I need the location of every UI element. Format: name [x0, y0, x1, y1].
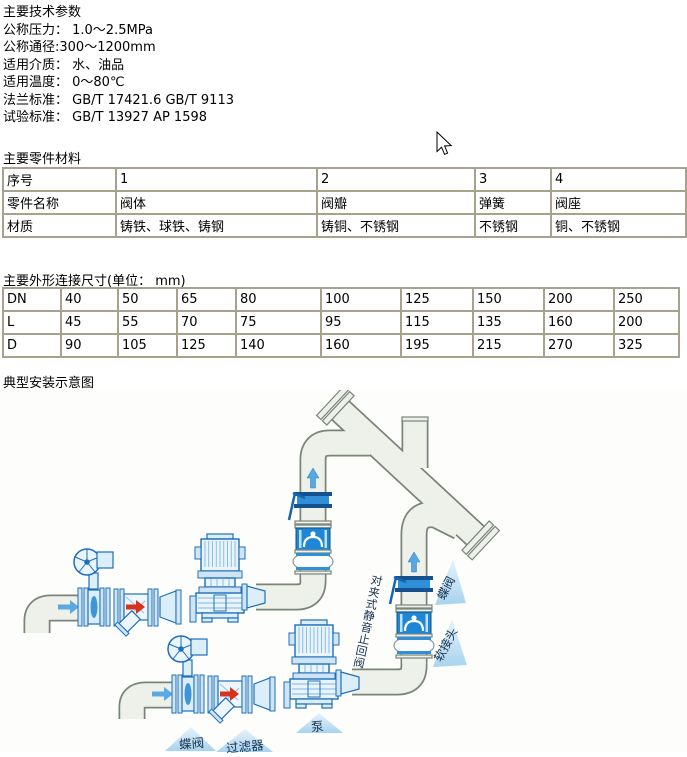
table-cell: 140 [236, 334, 321, 357]
label-butterfly-valve-bottom: 蝶阀 [178, 732, 205, 753]
table-cell: 65 [177, 288, 236, 311]
table-cell: 零件名称 [3, 191, 116, 214]
table-cell: 1 [116, 168, 317, 191]
table-cell: 50 [118, 288, 177, 311]
table-cell: 200 [614, 311, 679, 334]
table-cell: 铸铜、不锈钢 [317, 214, 475, 237]
tech-param-line: 公称通径:300～1200mm [3, 39, 234, 57]
section-title-materials: 主要零件材料 [3, 148, 81, 167]
installation-diagram-drawing [0, 390, 687, 752]
table-cell: 325 [614, 334, 679, 357]
label-strainer: 过滤器 [225, 734, 264, 756]
table-cell: 125 [177, 334, 236, 357]
table-cell: 95 [321, 311, 401, 334]
table-cell: L [3, 311, 61, 334]
table-row: 零件名称阀体阀瓣弹簧阀座 [3, 191, 686, 214]
table-cell: 阀瓣 [317, 191, 475, 214]
table-cell: 200 [544, 288, 614, 311]
table-row: L4555707595115135160200 [3, 311, 679, 334]
section-title-tech-params: 主要技术参数 [3, 4, 234, 22]
materials-table: 序号1234零件名称阀体阀瓣弹簧阀座材质铸铁、球铁、铸钢铸铜、不锈钢不锈钢铜、不… [2, 167, 687, 238]
table-cell: 不锈钢 [475, 214, 551, 237]
table-cell: 135 [473, 311, 544, 334]
table-row: DN40506580100125150200250 [3, 288, 679, 311]
table-cell: 90 [61, 334, 118, 357]
table-cell: 105 [118, 334, 177, 357]
table-cell: 80 [236, 288, 321, 311]
table-cell: 100 [321, 288, 401, 311]
table-cell: 阀座 [551, 191, 686, 214]
table-cell: 270 [544, 334, 614, 357]
branch-stub-cap [402, 417, 428, 421]
table-cell: 160 [544, 311, 614, 334]
table-cell: 250 [614, 288, 679, 311]
table-cell: 115 [401, 311, 473, 334]
table-cell: 160 [321, 334, 401, 357]
tech-param-line: 法兰标准： GB/T 17421.6 GB/T 9113 [3, 92, 234, 110]
label-pump: 泵 [310, 715, 324, 735]
table-cell: 4 [551, 168, 686, 191]
table-cell: 铸铁、球铁、铸钢 [116, 214, 317, 237]
table-cell: 40 [61, 288, 118, 311]
section-title-diagram: 典型安装示意图 [3, 372, 94, 391]
table-row: 序号1234 [3, 168, 686, 191]
installation-diagram: 对夹式静音止回阀 蝶阀 软接头 蝶阀 过滤器 泵 [0, 390, 687, 752]
tech-param-line: 公称压力： 1.0～2.5MPa [3, 22, 234, 40]
table-cell: 125 [401, 288, 473, 311]
table-cell: 75 [236, 311, 321, 334]
table-cell: 3 [475, 168, 551, 191]
table-cell: 阀体 [116, 191, 317, 214]
table-cell: D [3, 334, 61, 357]
tech-param-line: 适用温度： 0～80℃ [3, 74, 234, 92]
table-cell: 195 [401, 334, 473, 357]
table-row: 材质铸铁、球铁、铸钢铸铜、不锈钢不锈钢铜、不锈钢 [3, 214, 686, 237]
table-cell: DN [3, 288, 61, 311]
table-cell: 材质 [3, 214, 116, 237]
table-row: D90105125140160195215270325 [3, 334, 679, 357]
table-cell: 2 [317, 168, 475, 191]
tech-params-section: 主要技术参数 公称压力： 1.0～2.5MPa 公称通径:300～1200mm … [3, 4, 234, 127]
table-cell: 70 [177, 311, 236, 334]
table-cell: 150 [473, 288, 544, 311]
table-cell: 215 [473, 334, 544, 357]
tech-param-line: 试验标准： GB/T 13927 AP 1598 [3, 109, 234, 127]
table-cell: 55 [118, 311, 177, 334]
table-cell: 弹簧 [475, 191, 551, 214]
table-cell: 铜、不锈钢 [551, 214, 686, 237]
mouse-cursor [432, 130, 458, 162]
dimensions-table: DN40506580100125150200250L45557075951151… [2, 287, 680, 358]
table-cell: 序号 [3, 168, 116, 191]
tech-param-line: 适用介质： 水、油品 [3, 57, 234, 75]
table-cell: 45 [61, 311, 118, 334]
